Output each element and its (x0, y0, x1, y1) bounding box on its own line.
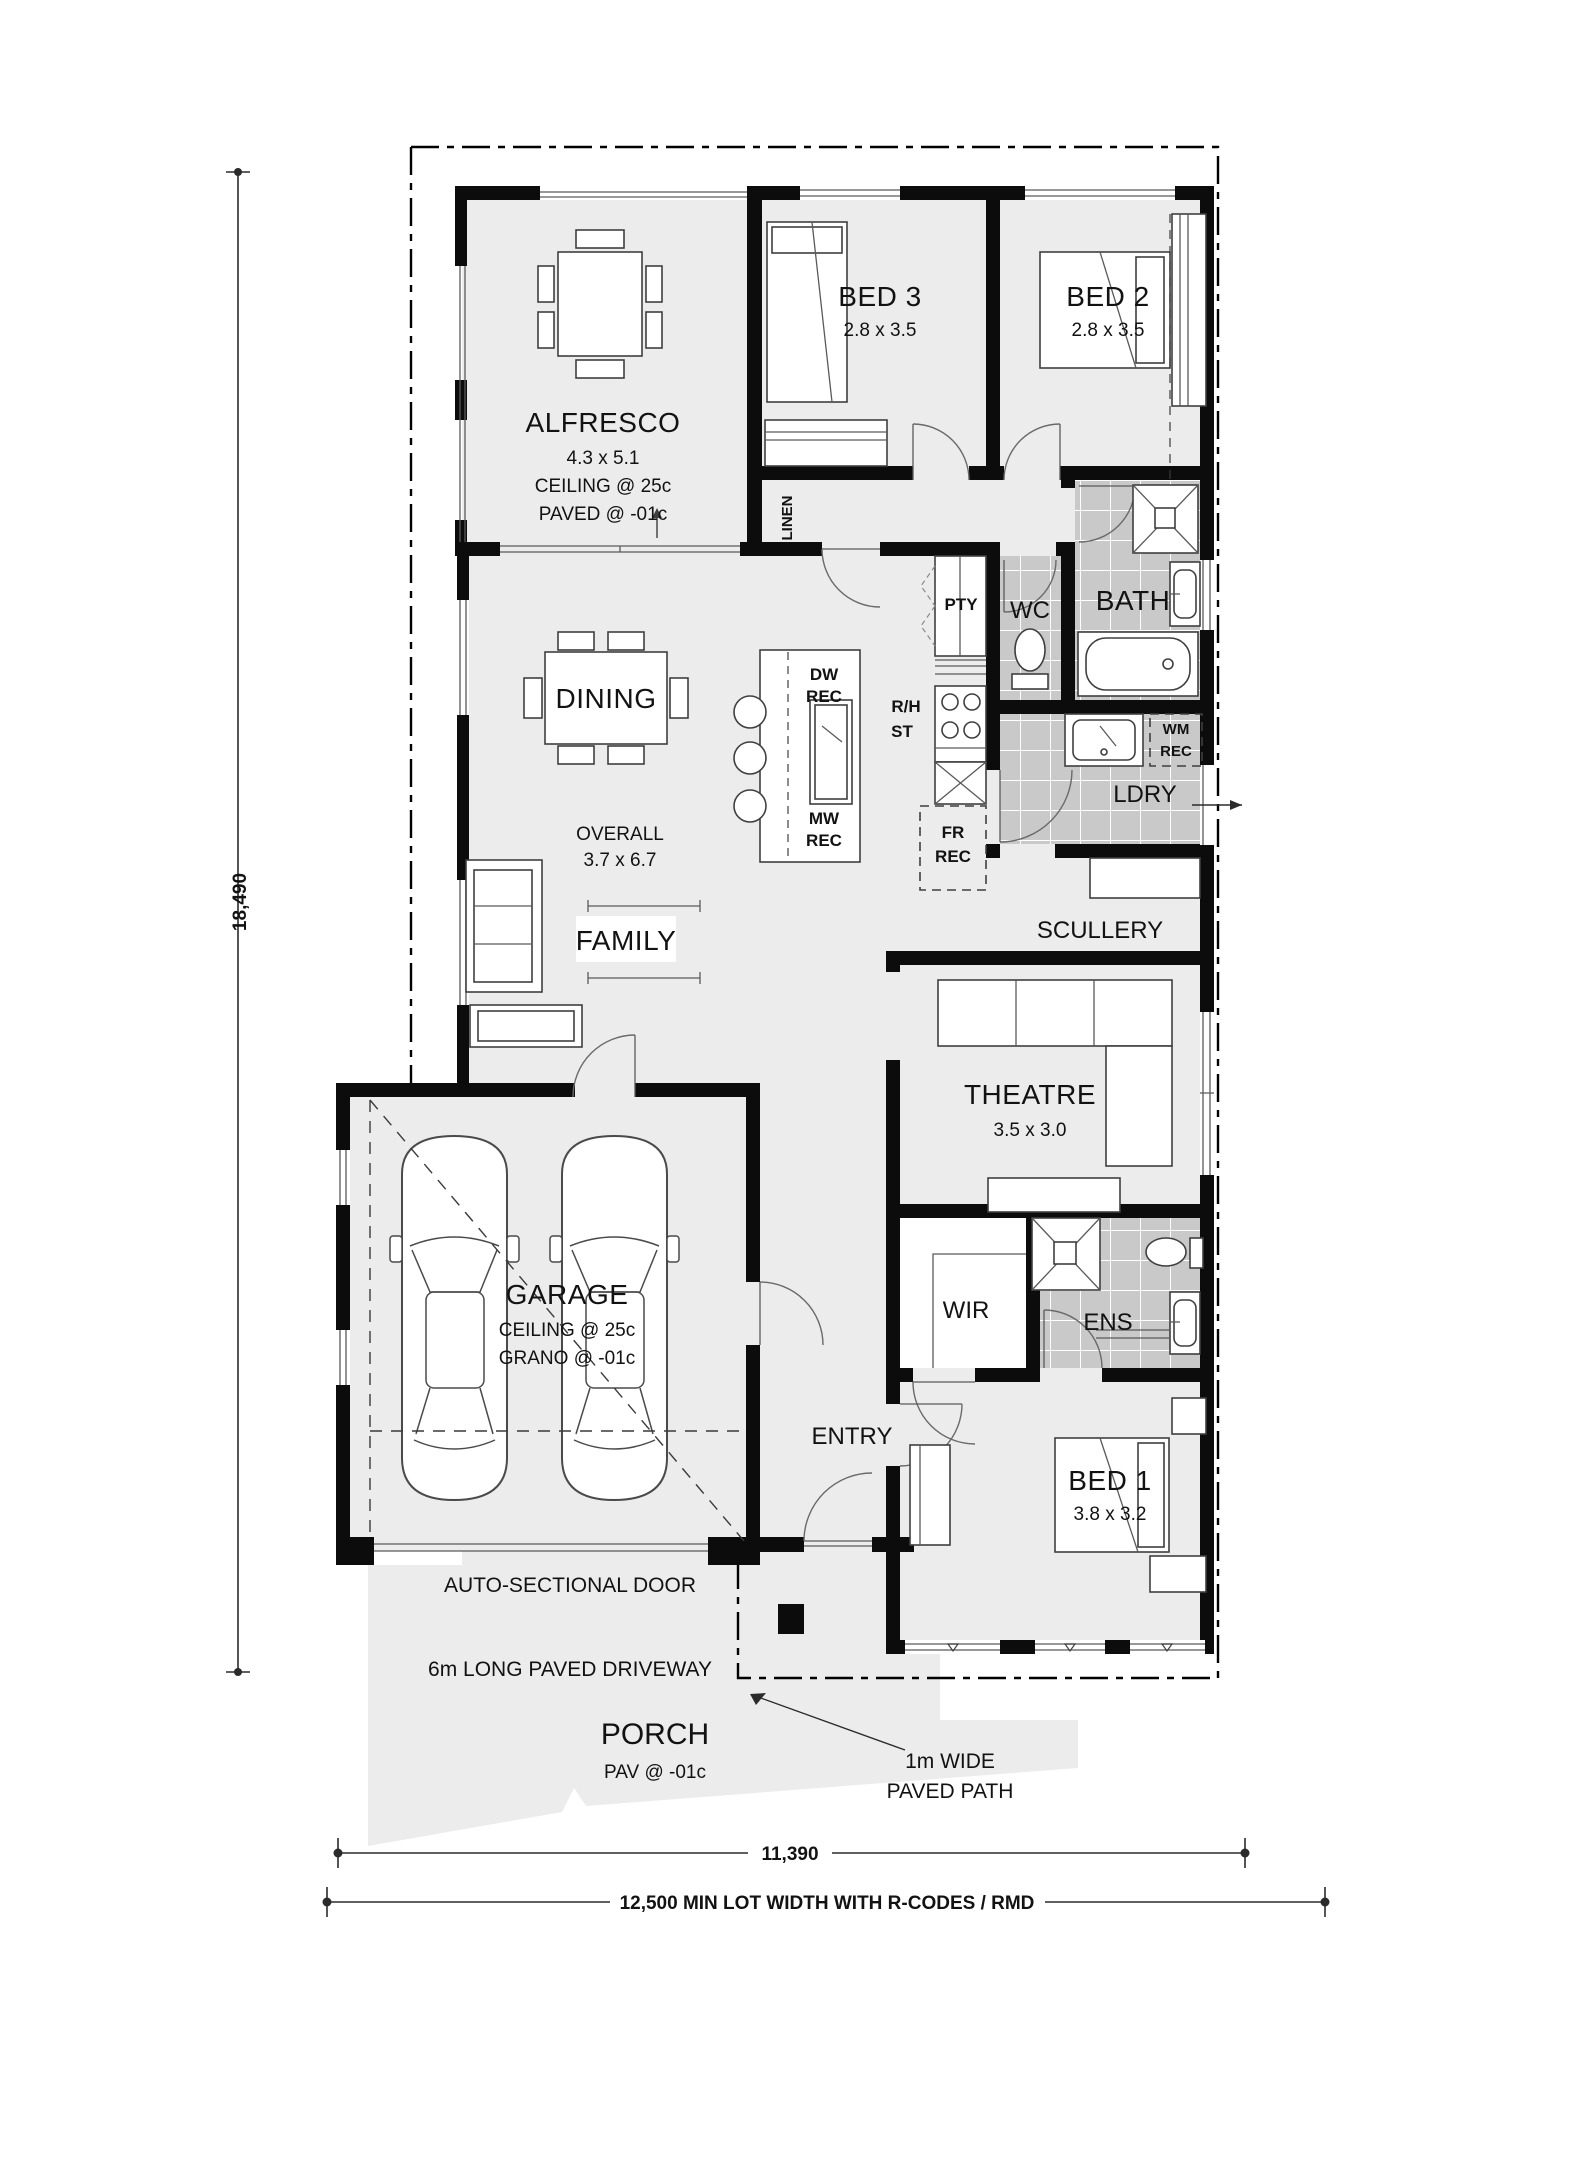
room-label-scullery: SCULLERY (1037, 917, 1163, 944)
room-label-bed1: BED 1 (1068, 1465, 1151, 1496)
rh-st-line1: R/H (891, 697, 920, 716)
bed1-window-3 (1130, 1640, 1205, 1654)
bed1-window-2 (1035, 1640, 1105, 1654)
room-label-ens: ENS (1083, 1309, 1132, 1336)
car-left (390, 1136, 519, 1500)
room-label-bath: BATH (1096, 585, 1171, 616)
bath-window (1200, 560, 1214, 630)
porch-note: PAV @ -01c (604, 1762, 706, 1783)
dw-rec-line1: DW (810, 665, 839, 684)
lot-depth-dimension: 18,490 (226, 168, 251, 1676)
room-label-pty: PTY (944, 595, 978, 614)
wm-rec-line1: WM (1163, 721, 1190, 738)
floor-plan-drawing: ALFRESCO 4.3 x 5.1 CEILING @ 25c PAVED @… (0, 0, 1589, 2161)
room-label-ldry: LDRY (1113, 781, 1177, 808)
paved-path-line1: 1m WIDE (905, 1750, 995, 1773)
driveway-label: 6m LONG PAVED DRIVEWAY (428, 1658, 712, 1681)
lot-width-text: 12,500 MIN LOT WIDTH WITH R-CODES / RMD (620, 1893, 1035, 1914)
room-label-theatre: THEATRE (964, 1079, 1096, 1110)
bed2-window (1025, 188, 1175, 198)
room-label-bed3: BED 3 (838, 281, 921, 312)
car-right (550, 1136, 679, 1500)
room-label-alfresco: ALFRESCO (526, 407, 681, 438)
wir-floor (900, 1218, 1026, 1368)
dw-rec-line2: REC (806, 687, 842, 706)
house-width-dimension: 11,390 (334, 1838, 1250, 1868)
bed1-dim: 3.8 x 3.2 (1074, 1504, 1147, 1525)
floor-plan-canvas: ALFRESCO 4.3 x 5.1 CEILING @ 25c PAVED @… (0, 0, 1589, 2161)
alfresco-note-paved: PAVED @ -01c (539, 504, 667, 525)
room-label-bed2: BED 2 (1066, 281, 1149, 312)
fr-rec-line1: FR (942, 823, 965, 842)
wm-rec-line2: REC (1160, 743, 1192, 760)
lot-depth-text: 18,490 (230, 873, 251, 931)
room-label-entry: ENTRY (812, 1423, 893, 1450)
bed3-dim: 2.8 x 3.5 (844, 320, 917, 341)
alfresco-note-ceiling: CEILING @ 25c (535, 476, 672, 497)
paved-path-line2: PAVED PATH (887, 1780, 1014, 1803)
room-label-dining: DINING (556, 683, 657, 714)
overall-label: OVERALL (576, 824, 664, 845)
garage-wall-notch-2 (336, 1330, 350, 1385)
garage-note-grano: GRANO @ -01c (499, 1348, 635, 1369)
theatre-window (1200, 1012, 1214, 1175)
room-label-wc: WC (1010, 597, 1050, 624)
room-label-linen: LINEN (779, 496, 796, 541)
room-label-family: FAMILY (576, 925, 677, 956)
house-width-text: 11,390 (761, 1844, 818, 1865)
bed3-window (800, 188, 900, 198)
auto-door-label: AUTO-SECTIONAL DOOR (444, 1574, 696, 1597)
wc-toilet (1012, 629, 1048, 689)
room-label-garage: GARAGE (506, 1279, 629, 1310)
bed2-dim: 2.8 x 3.5 (1072, 320, 1145, 341)
mw-rec-line2: REC (806, 831, 842, 850)
garage-note-ceiling: CEILING @ 25c (499, 1320, 636, 1341)
fr-rec-line2: REC (935, 847, 971, 866)
lot-width-dimension: 12,500 MIN LOT WIDTH WITH R-CODES / RMD (323, 1887, 1330, 1917)
theatre-dim: 3.5 x 3.0 (994, 1120, 1067, 1141)
mw-rec-line1: MW (809, 809, 840, 828)
room-label-wir: WIR (943, 1297, 990, 1324)
dining-window (457, 600, 469, 715)
alfresco-dim: 4.3 x 5.1 (567, 448, 640, 469)
overall-dim: 3.7 x 6.7 (584, 850, 657, 871)
room-label-porch: PORCH (601, 1718, 709, 1751)
rh-st-line2: ST (891, 722, 913, 741)
garage-wall-notch (336, 1150, 350, 1205)
bed1-window-1 (905, 1640, 1000, 1654)
scullery-bench (1090, 858, 1200, 898)
